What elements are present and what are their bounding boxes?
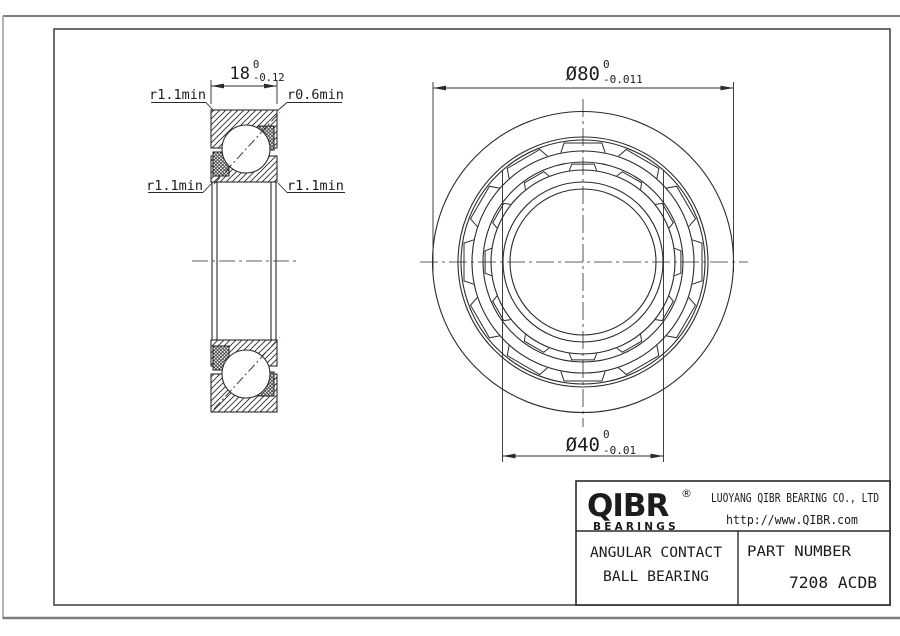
radius-label-top-right: r0.6min [287,87,344,103]
title-block: QIBR ® BEARINGS LUOYANG QIBR BEARING CO.… [576,481,890,605]
logo-subtext: BEARINGS [593,521,679,533]
front-view [420,82,748,462]
od-dimension: Ø80 0 -0.011 [433,58,734,90]
od-dimension-value: Ø80 [566,63,600,85]
width-dimension-value: 18 [230,64,250,84]
product-type-line1: ANGULAR CONTACT [590,545,722,561]
od-dimension-tol-upper: 0 [603,58,610,71]
od-dimension-tol-lower: -0.011 [603,73,643,86]
company-name: LUOYANG QIBR BEARING CO., LTD [711,491,879,505]
width-dimension-tol-lower: -0.12 [253,72,285,84]
radius-label-mid-left: r1.1min [146,178,203,194]
bore-dimension-tol-upper: 0 [603,428,610,441]
width-dimension: 18 0 -0.12 [211,59,285,104]
radius-label-top-left: r1.1min [149,87,206,103]
part-number-value: 7208 ACDB [789,573,877,592]
section-view [192,110,296,412]
bore-dimension: Ø40 0 -0.01 [503,428,664,458]
logo-text: QIBR [587,488,670,524]
drawing-page: 18 0 -0.12 r1.1min r0.6min r1.1min r1.1m… [0,0,900,636]
registered-mark-icon: ® [681,487,692,500]
company-url: http://www.QIBR.com [726,513,858,527]
radius-label-mid-right: r1.1min [287,178,344,194]
part-number-label: PART NUMBER [747,544,852,560]
bore-dimension-value: Ø40 [566,434,600,456]
drawing-canvas: 18 0 -0.12 r1.1min r0.6min r1.1min r1.1m… [0,0,900,636]
bore-dimension-tol-lower: -0.01 [603,444,636,457]
product-type-line2: BALL BEARING [603,569,709,585]
width-dimension-tol-upper: 0 [253,59,259,71]
